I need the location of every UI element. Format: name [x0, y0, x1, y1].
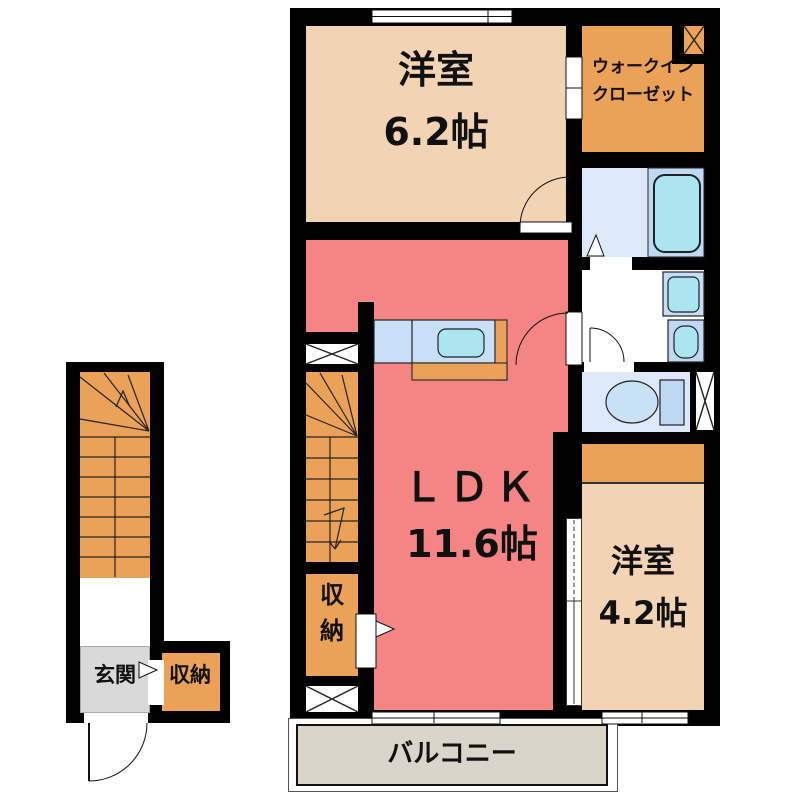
entrance-door — [84, 713, 148, 781]
bedroom-second-size: 4.2帖 — [582, 596, 704, 631]
kitchen-sink-icon — [438, 329, 484, 357]
window-bedroom-second — [602, 710, 688, 724]
bathtub-icon — [648, 168, 704, 257]
storage-hall-door — [356, 614, 394, 668]
wic-label-line1: ウォークイン — [582, 58, 704, 77]
toilet-icon — [606, 380, 684, 425]
ldk-size: 11.6帖 — [340, 524, 604, 566]
x-mark-wic — [684, 26, 704, 54]
toilet-door — [584, 328, 634, 372]
floorplan: 洋室 6.2帖 ウォークイン クローゼット ＬＤＫ 11.6帖 洋室 4.2帖 … — [0, 0, 800, 800]
window-ldk-balcony — [372, 710, 500, 724]
staircase-lower-treads — [80, 373, 150, 577]
x-mark-kitchen — [306, 344, 358, 364]
bedroom-main-size: 6.2帖 — [306, 112, 566, 154]
wic-label-line2: クローゼット — [582, 86, 704, 105]
storage-hall-label-char2: 納 — [306, 618, 358, 644]
bedroom-main-door — [520, 177, 572, 233]
bedroom-main-label: 洋室 — [306, 50, 566, 92]
x-mark-shaft — [696, 372, 714, 430]
entrance-label: 玄関 — [80, 664, 150, 687]
bedroom-second-label: 洋室 — [582, 544, 704, 579]
ldk-label: ＬＤＫ — [340, 466, 604, 510]
kitchen-counter — [374, 320, 507, 380]
window-bedroom-main — [372, 9, 512, 23]
bathroom-door — [587, 235, 632, 270]
x-mark-bottom — [306, 686, 358, 712]
balcony-label: バルコニー — [296, 740, 608, 769]
wic-door — [566, 57, 582, 119]
wash-basin-icon — [668, 320, 704, 362]
washing-machine-icon — [663, 272, 704, 316]
storage-entrance-label: 収納 — [150, 664, 230, 687]
washroom-door — [516, 312, 582, 365]
storage-hall-label-char1: 収 — [306, 582, 358, 608]
